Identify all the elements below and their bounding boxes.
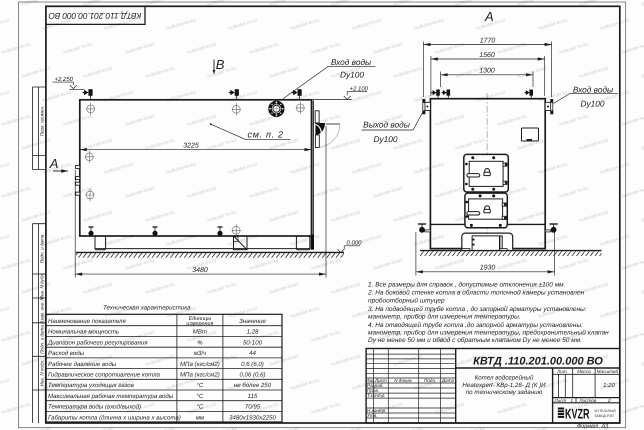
svg-text:манометр, прибор для измерения: манометр, прибор для измерения температу… [368, 329, 609, 336]
svg-text:+2.250: +2.250 [55, 76, 74, 83]
svg-text:hotkotel-kv.kz: hotkotel-kv.kz [83, 209, 114, 224]
svg-text:Heatexpert- КВр-1,28- Д (К )И: Heatexpert- КВр-1,28- Д (К )И [462, 382, 546, 389]
svg-text:hotkotel-kv.kz: hotkotel-kv.kz [1, 257, 32, 272]
svg-text:hotkotel-kv.kz: hotkotel-kv.kz [497, 41, 528, 56]
svg-text:hotkotel-kv.kz: hotkotel-kv.kz [621, 401, 644, 416]
svg-text:hotkotel-kv.kz: hotkotel-kv.kz [63, 257, 94, 272]
svg-text:Наименование показателя: Наименование показателя [48, 318, 126, 325]
svg-text:hotkotel-kv.kz: hotkotel-kv.kz [83, 281, 114, 296]
svg-text:hotkotel-kv.kz: hotkotel-kv.kz [1, 401, 32, 416]
svg-text:°С: °С [196, 404, 203, 411]
svg-text:0,06 (0,6): 0,06 (0,6) [239, 372, 265, 379]
svg-text:%: % [197, 339, 203, 346]
svg-text:hotkotel-kv.kz: hotkotel-kv.kz [621, 257, 644, 272]
svg-text:Рабочее давление воды: Рабочее давление воды [48, 361, 117, 368]
svg-text:hotkotel-kv.kz: hotkotel-kv.kz [414, 161, 445, 176]
svg-text:Максимальная рабочая температу: Максимальная рабочая температура воды [48, 393, 174, 400]
svg-text:Котел водогрейный: Котел водогрейный [475, 375, 534, 382]
svg-text:hotkotel-kv.kz: hotkotel-kv.kz [373, 41, 404, 56]
svg-text:hotkotel-kv.kz: hotkotel-kv.kz [145, 353, 176, 368]
svg-text:hotkotel-kv.kz: hotkotel-kv.kz [393, 353, 424, 368]
svg-text:hotkotel-kv.kz: hotkotel-kv.kz [517, 65, 548, 80]
svg-text:hotkotel-kv.kz: hotkotel-kv.kz [600, 161, 631, 176]
svg-text:hotkotel-kv.kz: hotkotel-kv.kz [166, 89, 197, 104]
svg-text:пробоотборный штуцер: пробоотборный штуцер [368, 298, 445, 305]
svg-text:3. На подводящей трубе котла: 3. На подводящей трубе котла , до запорн… [368, 306, 587, 313]
svg-text:Инв. N подл.: Инв. N подл. [40, 360, 45, 387]
svg-text:hotkotel-kv.kz: hotkotel-kv.kz [393, 209, 424, 224]
svg-text:hotkotel-kv.kz: hotkotel-kv.kz [621, 185, 644, 200]
svg-text:Температура уходящих газов: Температура уходящих газов [48, 382, 134, 389]
svg-text:hotkotel-kv.kz: hotkotel-kv.kz [104, 89, 135, 104]
svg-text:hotkotel-kv.kz: hotkotel-kv.kz [21, 281, 52, 296]
svg-text:Вход воды: Вход воды [331, 57, 371, 67]
svg-text:Подп: Подп [424, 378, 435, 383]
svg-text:hotkotel-kv.kz: hotkotel-kv.kz [352, 17, 383, 32]
svg-text:hotkotel-kv.kz: hotkotel-kv.kz [145, 65, 176, 80]
svg-text:hotkotel-kv.kz: hotkotel-kv.kz [269, 353, 300, 368]
svg-text:hotkotel-kv.kz: hotkotel-kv.kz [0, 17, 11, 32]
svg-text:hotkotel-kv.kz: hotkotel-kv.kz [455, 137, 486, 152]
svg-text:hotkotel-kv.kz: hotkotel-kv.kz [311, 329, 342, 344]
svg-text:1:20: 1:20 [603, 382, 615, 389]
svg-text:hotkotel-kv.kz: hotkotel-kv.kz [145, 209, 176, 224]
svg-text:МПа (кгс/см2): МПа (кгс/см2) [180, 372, 220, 379]
svg-text:hotkotel-kv.kz: hotkotel-kv.kz [104, 161, 135, 176]
svg-text:hotkotel-kv.kz: hotkotel-kv.kz [207, 209, 238, 224]
svg-text:hotkotel-kv.kz: hotkotel-kv.kz [579, 65, 610, 80]
svg-text:А: А [484, 9, 494, 24]
svg-text:В: В [216, 57, 225, 72]
svg-text:hotkotel-kv.kz: hotkotel-kv.kz [125, 41, 156, 56]
svg-text:Масса: Масса [577, 369, 591, 374]
svg-text:hotkotel-kv.kz: hotkotel-kv.kz [21, 65, 52, 80]
svg-text:манометр, прибор для измерения: манометр, прибор для измерения температу… [368, 314, 521, 321]
svg-text:МПа (кгс/см2): МПа (кгс/см2) [180, 361, 220, 368]
svg-text:Листов: Листов [578, 398, 596, 403]
svg-text:hotkotel-kv.kz: hotkotel-kv.kz [559, 185, 590, 200]
svg-text:Вход воды: Вход воды [573, 85, 613, 95]
svg-text:А: А [49, 156, 59, 171]
svg-text:по техническому заданию: по техническому заданию [466, 389, 543, 396]
svg-text:hotkotel-kv.kz: hotkotel-kv.kz [600, 305, 631, 320]
svg-text:hotkotel-kv.kz: hotkotel-kv.kz [311, 401, 342, 416]
svg-text:Дата: Дата [441, 378, 455, 383]
svg-text:Утв.: Утв. [367, 413, 377, 418]
svg-text:hotkotel-kv.kz: hotkotel-kv.kz [166, 17, 197, 32]
svg-text:hotkotel-kv.kz: hotkotel-kv.kz [435, 185, 466, 200]
svg-text:ЗАВОД РЭП: ЗАВОД РЭП [595, 414, 615, 418]
svg-text:Dу не менее 50 мм и обвод с о: Dу не менее 50 мм и обвод с обратным кла… [368, 337, 582, 344]
svg-text:hotkotel-kv.kz: hotkotel-kv.kz [269, 209, 300, 224]
svg-text:hotkotel-kv.kz: hotkotel-kv.kz [435, 257, 466, 272]
svg-text:70/95: 70/95 [245, 404, 261, 411]
svg-text:не более 250: не более 250 [234, 382, 272, 389]
svg-text:hotkotel-kv.kz: hotkotel-kv.kz [187, 185, 218, 200]
svg-text:Формат: Формат [577, 423, 599, 429]
svg-text:hotkotel-kv.kz: hotkotel-kv.kz [1, 185, 32, 200]
svg-text:4. На отводящей трубе котла ,: 4. На отводящей трубе котла ,до запорной… [368, 322, 583, 329]
svg-text:Инв. N дубл.: Инв. N дубл. [40, 273, 45, 300]
svg-text:2: 2 [607, 398, 611, 403]
svg-text:Масштаб: Масштаб [597, 369, 619, 374]
svg-text:hotkotel-kv.kz: hotkotel-kv.kz [311, 257, 342, 272]
svg-text:hotkotel-kv.kz: hotkotel-kv.kz [21, 209, 52, 224]
svg-text:3480: 3480 [192, 267, 208, 274]
svg-text:МВт: МВт [193, 329, 207, 336]
svg-text:hotkotel-kv.kz: hotkotel-kv.kz [559, 113, 590, 128]
svg-text:hotkotel-kv.kz: hotkotel-kv.kz [249, 257, 280, 272]
svg-text:3225: 3225 [183, 142, 199, 149]
svg-text:1300: 1300 [479, 68, 495, 75]
svg-text:см. п. 2: см. п. 2 [248, 129, 284, 139]
svg-text:°С: °С [196, 393, 203, 400]
svg-text:Значение: Значение [239, 318, 266, 325]
svg-text:hotkotel-kv.kz: hotkotel-kv.kz [269, 65, 300, 80]
svg-text:hotkotel-kv.kz: hotkotel-kv.kz [621, 329, 644, 344]
svg-text:hotkotel-kv.kz: hotkotel-kv.kz [414, 89, 445, 104]
svg-text:1560: 1560 [479, 52, 495, 59]
svg-text:44: 44 [249, 350, 256, 357]
svg-text:hotkotel-kv.kz: hotkotel-kv.kz [373, 257, 404, 272]
svg-text:hotkotel-kv.kz: hotkotel-kv.kz [435, 41, 466, 56]
svg-text:hotkotel-kv.kz: hotkotel-kv.kz [187, 113, 218, 128]
svg-text:Гидравлическое сопротивление к: Гидравлическое сопротивление котла [48, 372, 161, 379]
svg-text:hotkotel-kv.kz: hotkotel-kv.kz [249, 185, 280, 200]
svg-text:Температура воды (вход/выход): Температура воды (вход/выход) [48, 404, 141, 411]
svg-text:hotkotel-kv.kz: hotkotel-kv.kz [228, 17, 259, 32]
svg-text:м3/ч: м3/ч [194, 350, 207, 357]
svg-text:hotkotel-kv.kz: hotkotel-kv.kz [579, 137, 610, 152]
svg-text:KVZR: KVZR [565, 406, 590, 422]
svg-text:50-100: 50-100 [243, 339, 263, 346]
svg-text:мм: мм [196, 414, 205, 421]
svg-text:hotkotel-kv.kz: hotkotel-kv.kz [352, 161, 383, 176]
svg-text:hotkotel-kv.kz: hotkotel-kv.kz [497, 401, 528, 416]
svg-text:1,28: 1,28 [247, 329, 259, 336]
svg-text:Лист: Лист [554, 398, 567, 403]
svg-text:hotkotel-kv.kz: hotkotel-kv.kz [63, 113, 94, 128]
svg-text:hotkotel-kv.kz: hotkotel-kv.kz [414, 17, 445, 32]
svg-text:1. Все размеры для справок ,: 1. Все размеры для справок , допустимые … [368, 281, 566, 288]
svg-text:КВТД.110.201.00.000 ВО: КВТД.110.201.00.000 ВО [48, 11, 141, 21]
svg-text:Dy100: Dy100 [581, 98, 605, 108]
svg-text:Dy100: Dy100 [340, 70, 364, 80]
svg-text:hotkotel-kv.kz: hotkotel-kv.kz [621, 113, 644, 128]
svg-text:hotkotel-kv.kz: hotkotel-kv.kz [1, 41, 32, 56]
svg-text:2. На боковой стенке котла в: 2. На боковой стенке котла в области топ… [367, 290, 585, 297]
svg-text:hotkotel-kv.kz: hotkotel-kv.kz [393, 65, 424, 80]
svg-text:hotkotel-kv.kz: hotkotel-kv.kz [290, 305, 321, 320]
svg-text:hotkotel-kv.kz: hotkotel-kv.kz [21, 137, 52, 152]
svg-text:КОТЕЛЬНЫЙ: КОТЕЛЬНЫЙ [595, 408, 617, 413]
svg-text:hotkotel-kv.kz: hotkotel-kv.kz [125, 113, 156, 128]
svg-text:1930: 1930 [480, 265, 496, 272]
svg-text:hotkotel-kv.kz: hotkotel-kv.kz [290, 161, 321, 176]
svg-text:hotkotel-kv.kz: hotkotel-kv.kz [1, 329, 32, 344]
svg-text:hotkotel-kv.kz: hotkotel-kv.kz [579, 209, 610, 224]
svg-text:Dy100: Dy100 [374, 134, 398, 144]
svg-text:hotkotel-kv.kz: hotkotel-kv.kz [0, 89, 11, 104]
svg-text:hotkotel-kv.kz: hotkotel-kv.kz [331, 137, 362, 152]
svg-text:КВТД .110.201.00.000 ВО: КВТД .110.201.00.000 ВО [473, 356, 603, 368]
svg-text:hotkotel-kv.kz: hotkotel-kv.kz [538, 17, 569, 32]
svg-text:hotkotel-kv.kz: hotkotel-kv.kz [497, 257, 528, 272]
svg-text:hotkotel-kv.kz: hotkotel-kv.kz [0, 377, 11, 392]
svg-text:N докум.: N докум. [394, 378, 413, 383]
svg-text:Номинальная мощность: Номинальная мощность [48, 329, 119, 336]
svg-text:hotkotel-kv.kz: hotkotel-kv.kz [290, 377, 321, 392]
svg-text:115: 115 [248, 393, 258, 400]
svg-text:0.000: 0.000 [347, 240, 363, 247]
svg-text:Перв. примен.: Перв. примен. [40, 106, 45, 137]
svg-text:hotkotel-kv.kz: hotkotel-kv.kz [125, 185, 156, 200]
svg-text:Техническая характеристика: Техническая характеристика [103, 305, 191, 312]
svg-text:Расход воды: Расход воды [48, 350, 85, 357]
svg-text:измерения: измерения [186, 321, 213, 327]
svg-text:hotkotel-kv.kz: hotkotel-kv.kz [373, 185, 404, 200]
svg-text:hotkotel-kv.kz: hotkotel-kv.kz [0, 233, 11, 248]
svg-text:hotkotel-kv.kz: hotkotel-kv.kz [311, 185, 342, 200]
svg-text:hotkotel-kv.kz: hotkotel-kv.kz [269, 281, 300, 296]
svg-text:А3: А3 [601, 423, 609, 429]
svg-text:hotkotel-kv.kz: hotkotel-kv.kz [538, 233, 569, 248]
svg-text:hotkotel-kv.kz: hotkotel-kv.kz [83, 65, 114, 80]
svg-text:hotkotel-kv.kz: hotkotel-kv.kz [1, 113, 32, 128]
svg-text:hotkotel-kv.kz: hotkotel-kv.kz [476, 89, 507, 104]
svg-text:hotkotel-kv.kz: hotkotel-kv.kz [187, 41, 218, 56]
svg-text:hotkotel-kv.kz: hotkotel-kv.kz [621, 41, 644, 56]
svg-text:hotkotel-kv.kz: hotkotel-kv.kz [125, 257, 156, 272]
svg-text:1: 1 [571, 398, 574, 403]
svg-text:hotkotel-kv.kz: hotkotel-kv.kz [435, 113, 466, 128]
svg-text:hotkotel-kv.kz: hotkotel-kv.kz [166, 161, 197, 176]
svg-text:Диапазон рабочего регулировани: Диапазон рабочего регулирования [47, 339, 148, 346]
svg-text:Подп. и дата: Подп. и дата [40, 325, 45, 354]
svg-text:hotkotel-kv.kz: hotkotel-kv.kz [290, 17, 321, 32]
svg-text:hotkotel-kv.kz: hotkotel-kv.kz [559, 257, 590, 272]
svg-text:hotkotel-kv.kz: hotkotel-kv.kz [0, 161, 11, 176]
svg-text:°С: °С [196, 382, 203, 389]
svg-text:hotkotel-kv.kz: hotkotel-kv.kz [600, 17, 631, 32]
svg-text:hotkotel-kv.kz: hotkotel-kv.kz [517, 209, 548, 224]
svg-text:hotkotel-kv.kz: hotkotel-kv.kz [538, 161, 569, 176]
svg-text:Взам. инв. N: Взам. инв. N [40, 296, 45, 323]
svg-text:Подп. и дата: Подп. и дата [40, 234, 45, 263]
svg-text:hotkotel-kv.kz: hotkotel-kv.kz [249, 41, 280, 56]
svg-text:1770: 1770 [480, 37, 496, 44]
svg-text:hotkotel-kv.kz: hotkotel-kv.kz [207, 281, 238, 296]
svg-text:Лит.: Лит. [556, 369, 568, 374]
svg-text:hotkotel-kv.kz: hotkotel-kv.kz [63, 41, 94, 56]
svg-text:hotkotel-kv.kz: hotkotel-kv.kz [331, 209, 362, 224]
svg-text:3480х1930х2250: 3480х1930х2250 [229, 414, 276, 421]
svg-text:hotkotel-kv.kz: hotkotel-kv.kz [559, 41, 590, 56]
svg-text:hotkotel-kv.kz: hotkotel-kv.kz [311, 41, 342, 56]
svg-text:+2.100: +2.100 [350, 86, 369, 93]
svg-text:hotkotel-kv.kz: hotkotel-kv.kz [228, 161, 259, 176]
svg-text:hotkotel-kv.kz: hotkotel-kv.kz [600, 233, 631, 248]
svg-text:hotkotel-kv.kz: hotkotel-kv.kz [435, 401, 466, 416]
svg-text:Выход воды: Выход воды [363, 120, 410, 130]
svg-text:hotkotel-kv.kz: hotkotel-kv.kz [0, 305, 11, 320]
svg-text:Габариты котла (длинна х ширин: Габариты котла (длинна х ширина х высота… [48, 414, 181, 421]
svg-text:hotkotel-kv.kz: hotkotel-kv.kz [331, 281, 362, 296]
svg-text:hotkotel-kv.kz: hotkotel-kv.kz [497, 113, 528, 128]
svg-text:hotkotel-kv.kz: hotkotel-kv.kz [145, 281, 176, 296]
svg-text:Т.контр.: Т.контр. [367, 393, 386, 398]
svg-text:hotkotel-kv.kz: hotkotel-kv.kz [414, 233, 445, 248]
svg-text:0,6 (6,0): 0,6 (6,0) [241, 361, 264, 368]
svg-text:hotkotel-kv.kz: hotkotel-kv.kz [331, 353, 362, 368]
